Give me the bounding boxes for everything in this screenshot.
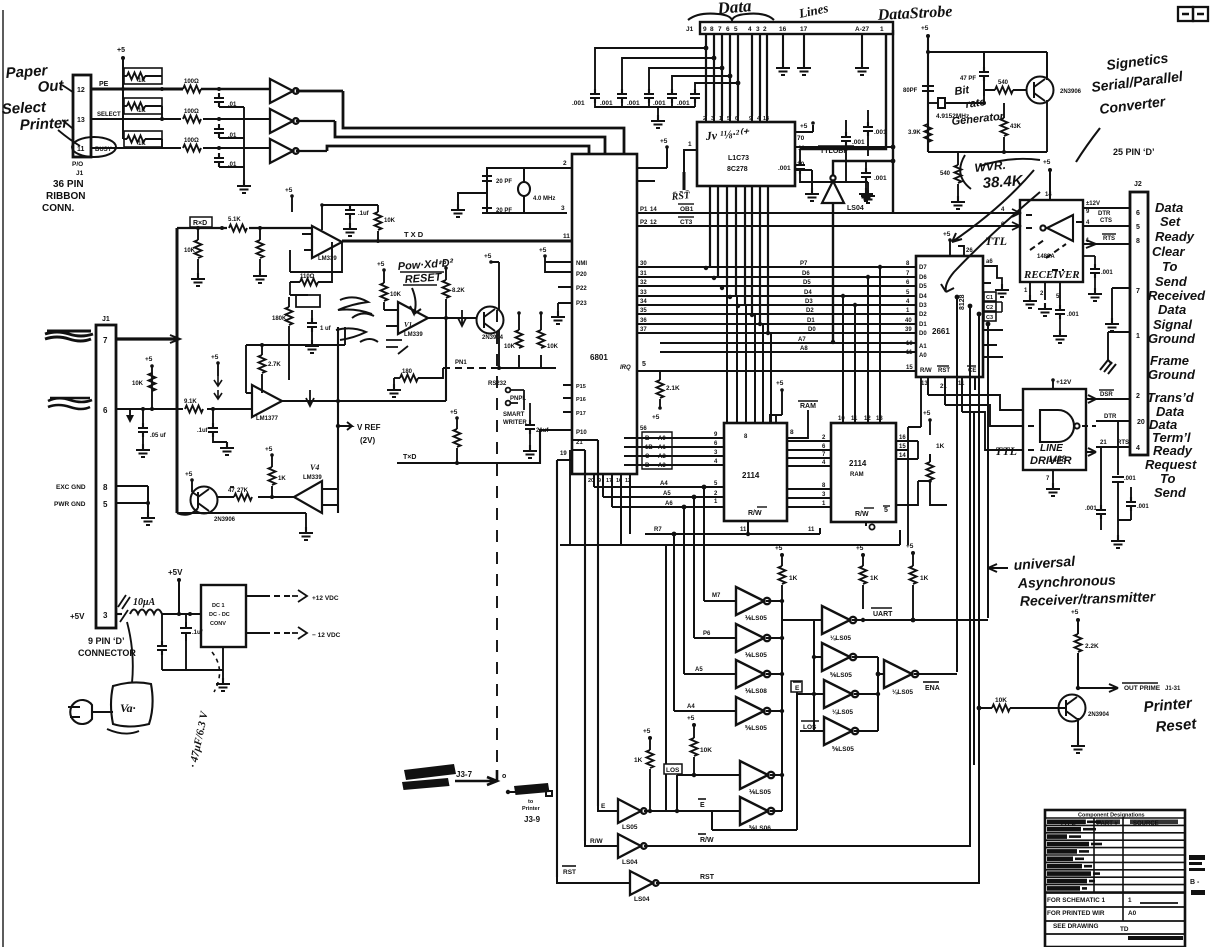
svg-text:TTLOBF: TTLOBF [820, 148, 848, 155]
svg-text:21: 21 [940, 384, 947, 390]
svg-text:.001: .001 [572, 100, 585, 107]
svg-text:5: 5 [103, 500, 108, 509]
svg-text:o: o [502, 773, 506, 780]
svg-text:2N3904: 2N3904 [1088, 712, 1110, 718]
svg-text:CT3: CT3 [680, 219, 693, 226]
svg-text:+5: +5 [923, 410, 931, 417]
svg-text:Va·: Va· [120, 701, 136, 715]
svg-text:100Ω: 100Ω [184, 138, 199, 144]
svg-text:L1C73: L1C73 [728, 155, 749, 162]
svg-text:RTS: RTS [1103, 236, 1115, 242]
svg-text:16: 16 [899, 435, 906, 441]
svg-text:Received: Received [1148, 288, 1206, 303]
svg-text:6: 6 [103, 406, 108, 415]
svg-text:.001: .001 [627, 100, 640, 107]
svg-text:CONN.: CONN. [42, 203, 74, 214]
svg-text:E: E [795, 685, 800, 692]
svg-text:J1-31: J1-31 [1165, 686, 1181, 692]
svg-text:CTS: CTS [1100, 218, 1112, 224]
svg-text:+5: +5 [800, 123, 808, 130]
svg-text:FOR SCHEMATIC 1: FOR SCHEMATIC 1 [1047, 897, 1106, 904]
svg-text:Clear: Clear [1152, 244, 1185, 259]
svg-text:D6: D6 [919, 275, 927, 281]
svg-text:10K: 10K [504, 344, 516, 350]
svg-text:10K: 10K [995, 697, 1007, 704]
svg-text:EXC GND: EXC GND [56, 484, 86, 491]
svg-text:RS232: RS232 [488, 381, 507, 387]
svg-text:+5: +5 [450, 409, 458, 416]
svg-text:70: 70 [797, 135, 805, 142]
svg-text:D4: D4 [919, 294, 927, 300]
svg-text:D6: D6 [802, 271, 810, 277]
svg-text:16: 16 [616, 478, 622, 484]
svg-text:P7: P7 [800, 261, 808, 267]
svg-text:P15: P15 [576, 384, 586, 390]
svg-text:2.1K: 2.1K [666, 385, 680, 392]
svg-text:1K: 1K [789, 575, 798, 582]
svg-text:11: 11 [740, 527, 747, 533]
svg-text:C1: C1 [986, 295, 993, 301]
svg-text:LM339: LM339 [303, 475, 322, 481]
svg-text:5: 5 [642, 361, 646, 368]
svg-text:5: 5 [734, 26, 738, 33]
svg-text:+5: +5 [145, 356, 153, 363]
svg-text:RAM: RAM [800, 403, 816, 410]
svg-text:5: 5 [884, 507, 888, 514]
svg-text:2.2K: 2.2K [1085, 643, 1099, 650]
svg-text:+5: +5 [906, 543, 914, 550]
svg-text:+5: +5 [943, 231, 951, 238]
svg-text:D5: D5 [919, 284, 927, 290]
svg-text:RECEIVER: RECEIVER [1023, 269, 1080, 281]
svg-text:+5: +5 [285, 187, 293, 194]
svg-text:(2V): (2V) [360, 436, 375, 445]
svg-text:J3-9: J3-9 [524, 815, 541, 824]
svg-text:10K: 10K [184, 248, 196, 254]
svg-text:D7: D7 [919, 265, 927, 271]
svg-text:10: 10 [797, 161, 805, 168]
svg-text:⅙LS05: ⅙LS05 [745, 651, 767, 659]
svg-text:2114: 2114 [742, 471, 760, 480]
svg-text:P2: P2 [640, 220, 648, 226]
svg-text:10K: 10K [390, 292, 402, 298]
svg-text:T×D: T×D [403, 454, 416, 461]
svg-text:19: 19 [560, 451, 567, 457]
svg-text:J1: J1 [102, 316, 110, 323]
svg-text:56: 56 [640, 426, 647, 432]
svg-text:SMART: SMART [503, 412, 525, 418]
svg-text:±12V: ±12V [1086, 201, 1100, 207]
svg-text:14: 14 [1045, 192, 1052, 198]
svg-text:LOS: LOS [803, 724, 817, 731]
svg-text:SELECT: SELECT [97, 112, 121, 118]
svg-text:Set: Set [1160, 214, 1181, 229]
svg-text:14: 14 [899, 453, 906, 459]
svg-text:PWR GND: PWR GND [54, 501, 86, 508]
svg-text:E: E [601, 803, 606, 810]
svg-text:8.2K: 8.2K [452, 288, 465, 294]
svg-text:33: 33 [640, 290, 647, 296]
svg-text:TTL: TTL [995, 444, 1017, 458]
svg-text:DC 1: DC 1 [212, 603, 225, 609]
svg-text:9: 9 [598, 478, 601, 484]
svg-text:+5: +5 [660, 138, 668, 145]
svg-text:J1: J1 [76, 170, 84, 177]
svg-text:.001: .001 [677, 100, 690, 107]
svg-text:TTL: TTL [985, 234, 1007, 248]
svg-text:20: 20 [1137, 419, 1145, 426]
svg-text:.001: .001 [1085, 506, 1097, 512]
svg-text:D2: D2 [919, 312, 927, 318]
svg-text:11: 11 [563, 233, 570, 240]
svg-text:⅛LS05: ⅛LS05 [830, 635, 851, 642]
svg-text:R/W: R/W [920, 368, 932, 374]
svg-text:R7: R7 [654, 527, 662, 533]
svg-text:J3-7: J3-7 [456, 770, 473, 779]
svg-text:15: 15 [899, 444, 906, 450]
svg-text:6: 6 [726, 26, 730, 33]
svg-text:Reset: Reset [1155, 715, 1198, 736]
svg-text:8: 8 [710, 26, 714, 33]
svg-text:1489A: 1489A [1037, 254, 1055, 260]
svg-text:4: 4 [1136, 445, 1140, 452]
svg-text:2114: 2114 [849, 459, 867, 468]
svg-text:7: 7 [718, 26, 722, 33]
svg-text:A4: A4 [687, 704, 695, 710]
svg-text:3.9K: 3.9K [908, 130, 921, 136]
svg-text:To: To [1160, 471, 1175, 486]
svg-text:39: 39 [905, 327, 912, 333]
svg-text:1K: 1K [278, 476, 286, 482]
svg-text:.1uf: .1uf [192, 630, 204, 636]
svg-text:12: 12 [864, 416, 871, 422]
svg-text:P23: P23 [576, 301, 587, 307]
svg-text:Ground: Ground [1148, 331, 1196, 346]
svg-text:10: 10 [838, 416, 845, 422]
svg-text:8128: 8128 [959, 294, 966, 310]
svg-text:D4: D4 [804, 290, 812, 296]
svg-text:P1: P1 [640, 207, 648, 213]
svg-text:2: 2 [563, 160, 567, 167]
svg-text:Frame: Frame [1150, 353, 1189, 368]
svg-text:⅛LS05: ⅛LS05 [892, 689, 913, 696]
svg-text:A4: A4 [660, 481, 668, 487]
svg-text:14: 14 [650, 207, 657, 213]
svg-text:180: 180 [402, 369, 413, 375]
svg-text:LINE: LINE [1040, 443, 1063, 454]
svg-text:R/W: R/W [855, 511, 869, 518]
svg-text:A0: A0 [1128, 910, 1137, 917]
svg-text:110Ω: 110Ω [300, 274, 315, 280]
svg-text:.001: .001 [600, 100, 613, 107]
svg-text:7: 7 [1136, 288, 1140, 295]
svg-text:P6: P6 [703, 631, 711, 637]
svg-text:+5: +5 [775, 545, 783, 552]
svg-text:11: 11 [906, 350, 913, 356]
svg-text:Printer: Printer [19, 114, 69, 134]
svg-text:LM339: LM339 [318, 256, 337, 262]
svg-text:1K: 1K [634, 757, 643, 764]
svg-text:SEE DRAWING: SEE DRAWING [1053, 923, 1098, 930]
svg-text:C3: C3 [986, 315, 993, 321]
svg-text:11: 11 [798, 145, 805, 152]
svg-text:IRQ: IRQ [620, 365, 631, 371]
svg-text:4.0 MHz: 4.0 MHz [533, 196, 555, 202]
svg-text:to: to [528, 799, 534, 805]
svg-text:Trans’d: Trans’d [1147, 390, 1195, 405]
svg-text:DTR: DTR [1104, 414, 1117, 420]
svg-text:V4: V4 [310, 463, 319, 472]
svg-text:+5: +5 [265, 446, 273, 453]
svg-text:+5: +5 [856, 545, 864, 552]
svg-text:R/W: R/W [590, 838, 604, 845]
svg-text:+5: +5 [539, 247, 547, 254]
svg-text:17: 17 [800, 26, 808, 33]
svg-text:Data: Data [1155, 200, 1183, 215]
svg-text:NMI: NMI [576, 261, 587, 267]
svg-text:5: 5 [1136, 224, 1140, 231]
svg-text:R̄S̄T̄: R̄S̄T̄ [670, 189, 691, 203]
svg-text:LS04: LS04 [634, 896, 650, 903]
svg-text:100Ω: 100Ω [184, 109, 199, 115]
svg-text:ENA: ENA [925, 685, 940, 692]
svg-text:6801: 6801 [590, 353, 608, 362]
svg-text:11: 11 [808, 527, 815, 533]
svg-text:A5: A5 [663, 491, 671, 497]
svg-text:25 PIN ‘D’: 25 PIN ‘D’ [1113, 147, 1155, 157]
svg-text:LS05: LS05 [622, 824, 638, 831]
svg-text:.001: .001 [874, 175, 887, 182]
svg-text:a6: a6 [986, 259, 993, 265]
svg-text:10K: 10K [132, 381, 144, 387]
svg-text:8: 8 [103, 483, 108, 492]
svg-text:.001: .001 [1124, 476, 1136, 482]
svg-text:A5: A5 [695, 667, 703, 673]
svg-text:13: 13 [77, 117, 85, 124]
svg-text:17: 17 [606, 478, 612, 484]
svg-text:180K: 180K [272, 316, 287, 322]
svg-text:+5: +5 [185, 471, 193, 478]
svg-text:34: 34 [640, 299, 647, 305]
svg-text:LS04: LS04 [622, 859, 638, 866]
svg-text:A7: A7 [798, 337, 806, 343]
svg-text:15: 15 [906, 365, 913, 371]
svg-text:2N3906: 2N3906 [1060, 89, 1082, 95]
svg-text:V1: V1 [404, 321, 412, 329]
svg-text:1K: 1K [920, 575, 929, 582]
svg-text:D0: D0 [919, 331, 927, 337]
svg-text:.001: .001 [653, 100, 666, 107]
svg-text:.001: .001 [1137, 504, 1149, 510]
svg-text:⅚LS05: ⅚LS05 [832, 745, 854, 753]
svg-text:8: 8 [1136, 238, 1140, 245]
svg-text:⅛LS05: ⅛LS05 [832, 709, 853, 716]
svg-text:4: 4 [748, 26, 752, 33]
svg-text:DRIVER: DRIVER [1030, 455, 1072, 467]
svg-text:.05 uf: .05 uf [150, 433, 167, 439]
svg-text:37: 37 [640, 327, 647, 333]
svg-text:3: 3 [756, 26, 760, 33]
svg-text:16: 16 [779, 26, 787, 33]
svg-text:1K: 1K [138, 141, 146, 147]
svg-text:D0: D0 [808, 327, 816, 333]
svg-text:10K: 10K [547, 344, 559, 350]
svg-text:1K: 1K [870, 575, 879, 582]
svg-text:1: 1 [688, 141, 692, 148]
svg-text:J1: J1 [686, 26, 694, 33]
svg-text:UART: UART [873, 611, 893, 618]
svg-text:2N3906: 2N3906 [214, 517, 236, 523]
svg-text:13: 13 [876, 416, 883, 422]
svg-text:32: 32 [640, 280, 647, 286]
svg-text:40: 40 [905, 318, 912, 324]
svg-text:D2: D2 [806, 308, 814, 314]
svg-text:1 uf: 1 uf [320, 326, 332, 332]
svg-text:+5: +5 [921, 25, 929, 32]
svg-text:+5V: +5V [70, 612, 85, 621]
svg-text:36: 36 [640, 318, 647, 324]
svg-text:20 PF: 20 PF [496, 208, 512, 214]
svg-text:⅙LS05: ⅙LS05 [745, 614, 767, 622]
svg-text:A0: A0 [919, 353, 927, 359]
svg-text:+5: +5 [439, 259, 447, 266]
svg-text:+12V: +12V [1056, 379, 1072, 386]
svg-text:R/W: R/W [748, 510, 762, 517]
svg-text:12: 12 [77, 87, 85, 94]
svg-text:2: 2 [763, 26, 767, 33]
svg-text:+5: +5 [776, 380, 784, 387]
svg-text:FOR PRINTED WIR: FOR PRINTED WIR [1047, 910, 1105, 917]
svg-text:.1uf: .1uf [358, 211, 370, 217]
svg-text:LM1377: LM1377 [256, 416, 279, 422]
svg-text:LM339: LM339 [404, 332, 423, 338]
svg-text:CONNECTOR: CONNECTOR [78, 648, 136, 658]
svg-text:Request: Request [1145, 457, 1197, 472]
svg-text:6: 6 [1136, 210, 1140, 217]
svg-text:P17: P17 [576, 411, 586, 417]
svg-text:80PF: 80PF [903, 88, 918, 94]
svg-text:1: 1 [1128, 897, 1132, 904]
svg-text:2.7K: 2.7K [268, 362, 281, 368]
svg-text:10μA: 10μA [133, 597, 156, 608]
svg-text:2661: 2661 [932, 327, 950, 336]
svg-text:Out: Out [37, 77, 65, 96]
svg-text:1K: 1K [936, 443, 945, 450]
svg-text:A1: A1 [919, 344, 927, 350]
svg-text:+5: +5 [643, 728, 651, 735]
svg-text:7: 7 [103, 336, 108, 345]
svg-text:100Ω: 100Ω [184, 79, 199, 85]
svg-text:Component Designations: Component Designations [1078, 813, 1145, 819]
svg-text:+5: +5 [484, 253, 492, 260]
svg-text:12: 12 [625, 478, 631, 484]
svg-text:27K: 27K [237, 488, 249, 494]
svg-text:Send: Send [1154, 485, 1187, 500]
svg-text:1: 1 [1136, 333, 1140, 340]
svg-text:CE: CE [968, 368, 976, 374]
svg-text:RST: RST [700, 874, 715, 881]
svg-text:OUT PRIME: OUT PRIME [1124, 685, 1161, 692]
svg-text:12: 12 [650, 220, 657, 226]
svg-text:DC - DC: DC - DC [209, 612, 230, 618]
svg-text:− 12 VDC: − 12 VDC [312, 632, 341, 639]
svg-text:RIBBON: RIBBON [46, 191, 85, 202]
svg-text:T X D: T X D [404, 230, 424, 239]
svg-text:.001: .001 [852, 139, 865, 146]
svg-text:8: 8 [790, 429, 794, 436]
svg-text:+5: +5 [377, 261, 385, 268]
svg-text:D3: D3 [805, 299, 813, 305]
svg-text:.001: .001 [1101, 270, 1113, 276]
svg-text:R/W: R/W [700, 837, 714, 844]
svg-text:Data: Data [1158, 302, 1186, 317]
svg-text:10: 10 [906, 341, 913, 347]
svg-text:21uf: 21uf [536, 428, 549, 434]
svg-text:1K: 1K [138, 108, 146, 114]
svg-text:+5: +5 [117, 47, 125, 54]
svg-text:TD: TD [1120, 926, 1129, 933]
svg-text:M7: M7 [712, 593, 721, 599]
svg-text:11: 11 [77, 146, 85, 153]
svg-text:3: 3 [561, 205, 565, 212]
svg-text:D3: D3 [919, 303, 927, 309]
svg-text:E: E [700, 802, 705, 809]
svg-text:20: 20 [588, 478, 594, 484]
svg-text:To: To [1162, 259, 1177, 274]
svg-text:.001: .001 [778, 165, 791, 172]
svg-text:R×D: R×D [193, 220, 207, 227]
svg-text:PN1: PN1 [455, 360, 467, 366]
svg-text:31: 31 [640, 271, 647, 277]
svg-text:LOS: LOS [666, 767, 680, 774]
svg-text:P20: P20 [576, 272, 587, 278]
svg-text:30: 30 [640, 261, 647, 267]
svg-text:3: 3 [103, 611, 108, 620]
svg-text:⅙LS08: ⅙LS08 [745, 687, 767, 695]
svg-text:Ready: Ready [1155, 229, 1195, 244]
svg-text:CONV: CONV [210, 621, 226, 627]
svg-text:Ground: Ground [1148, 367, 1196, 382]
svg-text:OB1: OB1 [680, 206, 694, 213]
svg-text:35: 35 [640, 308, 647, 314]
svg-text:47: 47 [228, 488, 235, 494]
svg-text:RST: RST [563, 869, 576, 876]
svg-text:RST: RST [938, 368, 950, 374]
svg-text:D1: D1 [807, 318, 815, 324]
svg-text:+5: +5 [1071, 609, 1079, 616]
svg-text:1: 1 [880, 26, 884, 33]
svg-text:21: 21 [1100, 440, 1107, 446]
svg-text:36 PIN: 36 PIN [53, 179, 84, 190]
svg-text:+5: +5 [211, 354, 219, 361]
svg-text:540: 540 [998, 80, 1009, 86]
svg-text:A8: A8 [800, 346, 808, 352]
svg-text:⅚LS05: ⅚LS05 [745, 724, 767, 732]
svg-text:⅙LS05: ⅙LS05 [749, 788, 771, 796]
svg-text:BUSY: BUSY [95, 147, 112, 153]
svg-text:.001: .001 [874, 129, 887, 136]
svg-text:10K: 10K [700, 747, 712, 754]
svg-text:Printer: Printer [522, 806, 541, 812]
svg-text:38.4K: 38.4K [982, 172, 1024, 192]
svg-text:C2: C2 [986, 305, 993, 311]
svg-text:43K: 43K [1010, 124, 1022, 130]
svg-text:5.1K: 5.1K [228, 217, 241, 223]
svg-text:DTR: DTR [1098, 211, 1111, 217]
svg-text:9.1K: 9.1K [184, 399, 197, 405]
svg-text:.1uf: .1uf [197, 428, 209, 434]
svg-text:WRITER: WRITER [503, 420, 527, 426]
